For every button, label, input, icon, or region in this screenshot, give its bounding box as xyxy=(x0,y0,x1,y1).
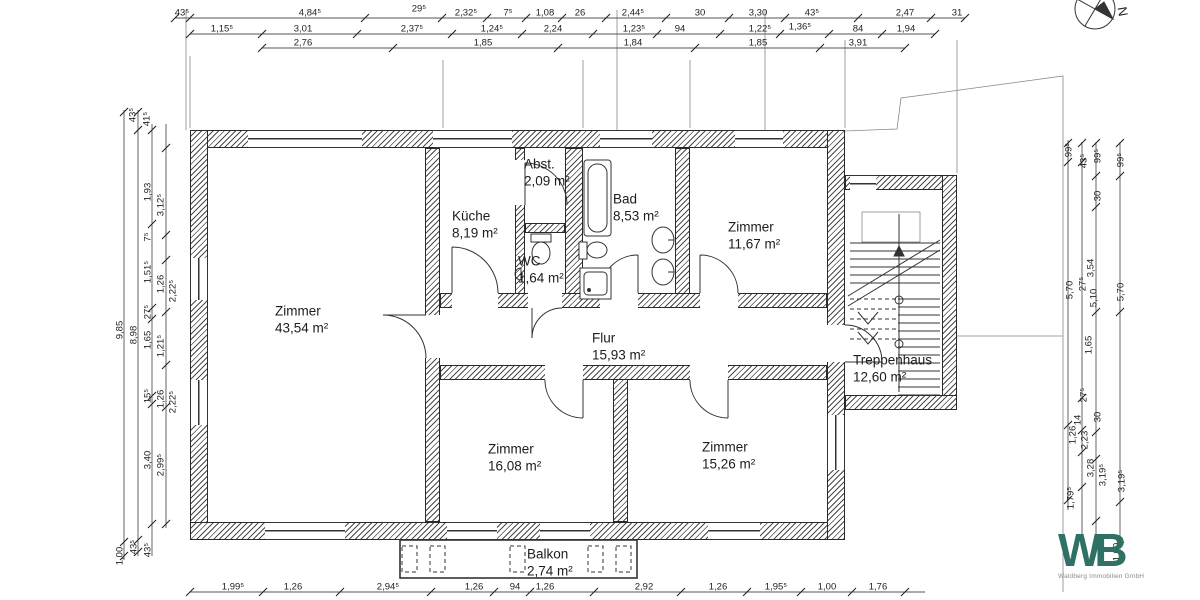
bathtub-icon xyxy=(584,160,611,236)
compass-icon xyxy=(1075,0,1115,29)
dim-label: 5,10 xyxy=(1089,289,1100,308)
dim-label: 2,99⁵ xyxy=(156,454,167,476)
north-label: N xyxy=(1114,6,1130,18)
dim-label: 43⁵ xyxy=(128,108,139,123)
dim-label: 1,95⁵ xyxy=(765,582,787,593)
logo-wb-text: WB xyxy=(1058,528,1144,572)
dim-label: 30 xyxy=(1093,412,1104,423)
dim-label: 1,79⁵ xyxy=(1066,487,1077,509)
dim-label: 3,54 xyxy=(1086,259,1097,278)
dim-label: 1,08 xyxy=(536,8,555,19)
dim-label: 3,28 xyxy=(1086,459,1097,478)
room-label-livingroom: Zimmer43,54 m² xyxy=(275,304,328,337)
room-label-storage: Abst.2,09 m² xyxy=(524,157,570,190)
door-gap-bath xyxy=(600,292,638,309)
dim-label: 27⁵ xyxy=(1078,277,1089,292)
dim-label: 1,51⁵ xyxy=(143,261,154,283)
dim-label: 1,26 xyxy=(156,275,167,294)
dim-label: 1,94 xyxy=(897,24,916,35)
wall-interior-corridor-south xyxy=(440,365,827,380)
wall-interior-abst-wc xyxy=(525,223,565,233)
dim-label: 1,84 xyxy=(624,38,643,49)
dim-label: 9,85 xyxy=(115,321,126,340)
sink-icons-bath xyxy=(652,227,674,285)
dim-label: 15⁵ xyxy=(143,389,154,404)
door-gap-wc xyxy=(528,292,562,309)
dim-label: 30 xyxy=(695,8,706,19)
dim-label: 99⁵ xyxy=(1064,143,1075,158)
dim-label: 43⁵ xyxy=(175,8,190,19)
room-label-bath: Bad8,53 m² xyxy=(613,192,659,225)
company-logo: WB Waldberg Immobilien GmbH xyxy=(1058,528,1144,580)
dim-label: 2,47 xyxy=(896,8,915,19)
dim-label: 1,36⁵ xyxy=(789,22,811,33)
dim-label: 2,24 xyxy=(544,24,563,35)
room-label-room-se: Zimmer15,26 m² xyxy=(702,440,755,473)
wall-exterior-left xyxy=(190,130,208,540)
door-gap-room-se xyxy=(690,364,728,381)
dim-label: 5,70 xyxy=(1065,281,1076,300)
room-label-room-ne: Zimmer11,67 m² xyxy=(728,220,780,253)
dim-label: 7⁵ xyxy=(143,232,154,241)
dim-label: 1,26 xyxy=(1068,426,1079,445)
room-label-wc: WC1,64 m² xyxy=(518,254,564,287)
dim-label: 1,76 xyxy=(869,582,888,593)
door-gap-room-sw xyxy=(545,364,583,381)
window-top-livingroom xyxy=(248,130,362,148)
room-label-corridor: Flur15,93 m² xyxy=(592,331,645,364)
logo-subtext: Waldberg Immobilien GmbH xyxy=(1058,573,1144,580)
dim-label: 43⁵ xyxy=(805,8,820,19)
dim-label: 3,30 xyxy=(749,8,768,19)
dim-label: 2,44⁵ xyxy=(622,8,644,19)
window-top-room-ne xyxy=(735,130,783,148)
dim-label: 1,85 xyxy=(749,38,768,49)
dim-label: 4,84⁵ xyxy=(299,8,321,19)
dim-label: 1,24⁵ xyxy=(481,24,503,35)
window-top-bath xyxy=(600,130,652,148)
window-bottom-livingroom xyxy=(265,522,345,540)
wall-stairwell-bottom xyxy=(845,395,957,410)
room-label-stairwell: Treppenhaus12,60 m² xyxy=(853,353,932,386)
dim-label: 2,32⁵ xyxy=(455,8,477,19)
wall-interior-bottom-rooms xyxy=(613,372,628,522)
dim-label: 1,15⁵ xyxy=(211,24,233,35)
dim-label: 1,65 xyxy=(1084,336,1095,355)
toilet-icon-bath xyxy=(579,242,607,259)
dim-label: 2,22⁵ xyxy=(168,280,179,302)
dim-label: 2,92 xyxy=(635,582,654,593)
dim-label: 99⁵ xyxy=(1093,149,1104,164)
dim-label: 43⁵ xyxy=(143,543,154,558)
dim-label: 1,23⁵ xyxy=(623,24,645,35)
dim-label: 1,26 xyxy=(536,582,555,593)
dim-label: 29⁵ xyxy=(412,4,427,15)
dim-label: 41⁵ xyxy=(142,112,153,127)
dim-label: 1,26 xyxy=(284,582,303,593)
window-stairwell xyxy=(850,175,876,190)
dim-label: 3,91 xyxy=(849,38,868,49)
window-left-1 xyxy=(190,258,208,300)
dim-label: 8,98 xyxy=(129,326,140,345)
dim-label: 94 xyxy=(675,24,686,35)
balcony-outline xyxy=(400,540,637,578)
dim-label: 26 xyxy=(575,8,586,19)
dim-label: 84 xyxy=(853,24,864,35)
dim-label: 1,00 xyxy=(818,582,837,593)
dim-label: 2,22⁵ xyxy=(168,391,179,413)
dim-label: 31 xyxy=(952,8,963,19)
wall-stairwell-right xyxy=(942,175,957,410)
dim-label: 1,65 xyxy=(143,331,154,350)
dim-label: 43⁵ xyxy=(129,540,140,555)
door-gap-stairwell xyxy=(826,325,846,362)
dim-label: 2,94⁵ xyxy=(377,582,399,593)
room-label-room-sw: Zimmer16,08 m² xyxy=(488,442,541,475)
dim-label: 1,22⁵ xyxy=(749,24,771,35)
dim-label: 27⁵ xyxy=(1079,388,1090,403)
dim-label: 2,23 xyxy=(1080,431,1091,450)
window-top-kitchen xyxy=(433,130,512,148)
dim-label: 1,00 xyxy=(115,547,126,566)
dim-label: 2,76 xyxy=(294,38,313,49)
dim-label: 30 xyxy=(1093,191,1104,202)
dim-label: 3,40 xyxy=(143,451,154,470)
door-gap-kitchen xyxy=(452,292,498,309)
dim-label: 94 xyxy=(510,582,521,593)
dim-label: 2,37⁵ xyxy=(401,24,423,35)
door-gap-room-ne xyxy=(700,292,738,309)
dim-label: 3,12⁵ xyxy=(156,194,167,216)
window-left-2 xyxy=(190,380,208,425)
dim-label: 43⁵ xyxy=(1079,154,1090,169)
dim-label: 3,19⁵ xyxy=(1117,470,1128,492)
dim-label: 3,19⁵ xyxy=(1098,464,1109,486)
dim-label: 5,70 xyxy=(1116,283,1127,302)
dim-label: 1,26 xyxy=(156,390,167,409)
door-gap-livingroom xyxy=(424,315,441,358)
dim-label: 7⁵ xyxy=(503,8,512,19)
dim-label: 1,99⁵ xyxy=(222,582,244,593)
dim-label: 1,93 xyxy=(143,183,154,202)
window-bottom-room-sw xyxy=(447,522,497,540)
dim-label: 99⁵ xyxy=(1116,153,1127,168)
room-label-balcony: Balkon2,74 m² xyxy=(527,547,573,580)
dim-label: 1,26 xyxy=(709,582,728,593)
window-right-room-se xyxy=(827,415,845,470)
dim-label: 1,85 xyxy=(474,38,493,49)
dim-label: 1,21⁵ xyxy=(156,335,167,357)
dim-label: 14 xyxy=(1073,415,1084,426)
dim-label: 1,26 xyxy=(465,582,484,593)
wall-interior-bath-room xyxy=(675,148,690,300)
window-bottom-room-se xyxy=(708,522,760,540)
dim-label: 27⁵ xyxy=(143,305,154,320)
balcony-door xyxy=(540,522,590,540)
dim-label: 3,01 xyxy=(294,24,313,35)
floor-plan: Zimmer43,54 m² Küche8,19 m² Abst.2,09 m²… xyxy=(0,0,1200,600)
room-label-kitchen: Küche8,19 m² xyxy=(452,209,498,242)
